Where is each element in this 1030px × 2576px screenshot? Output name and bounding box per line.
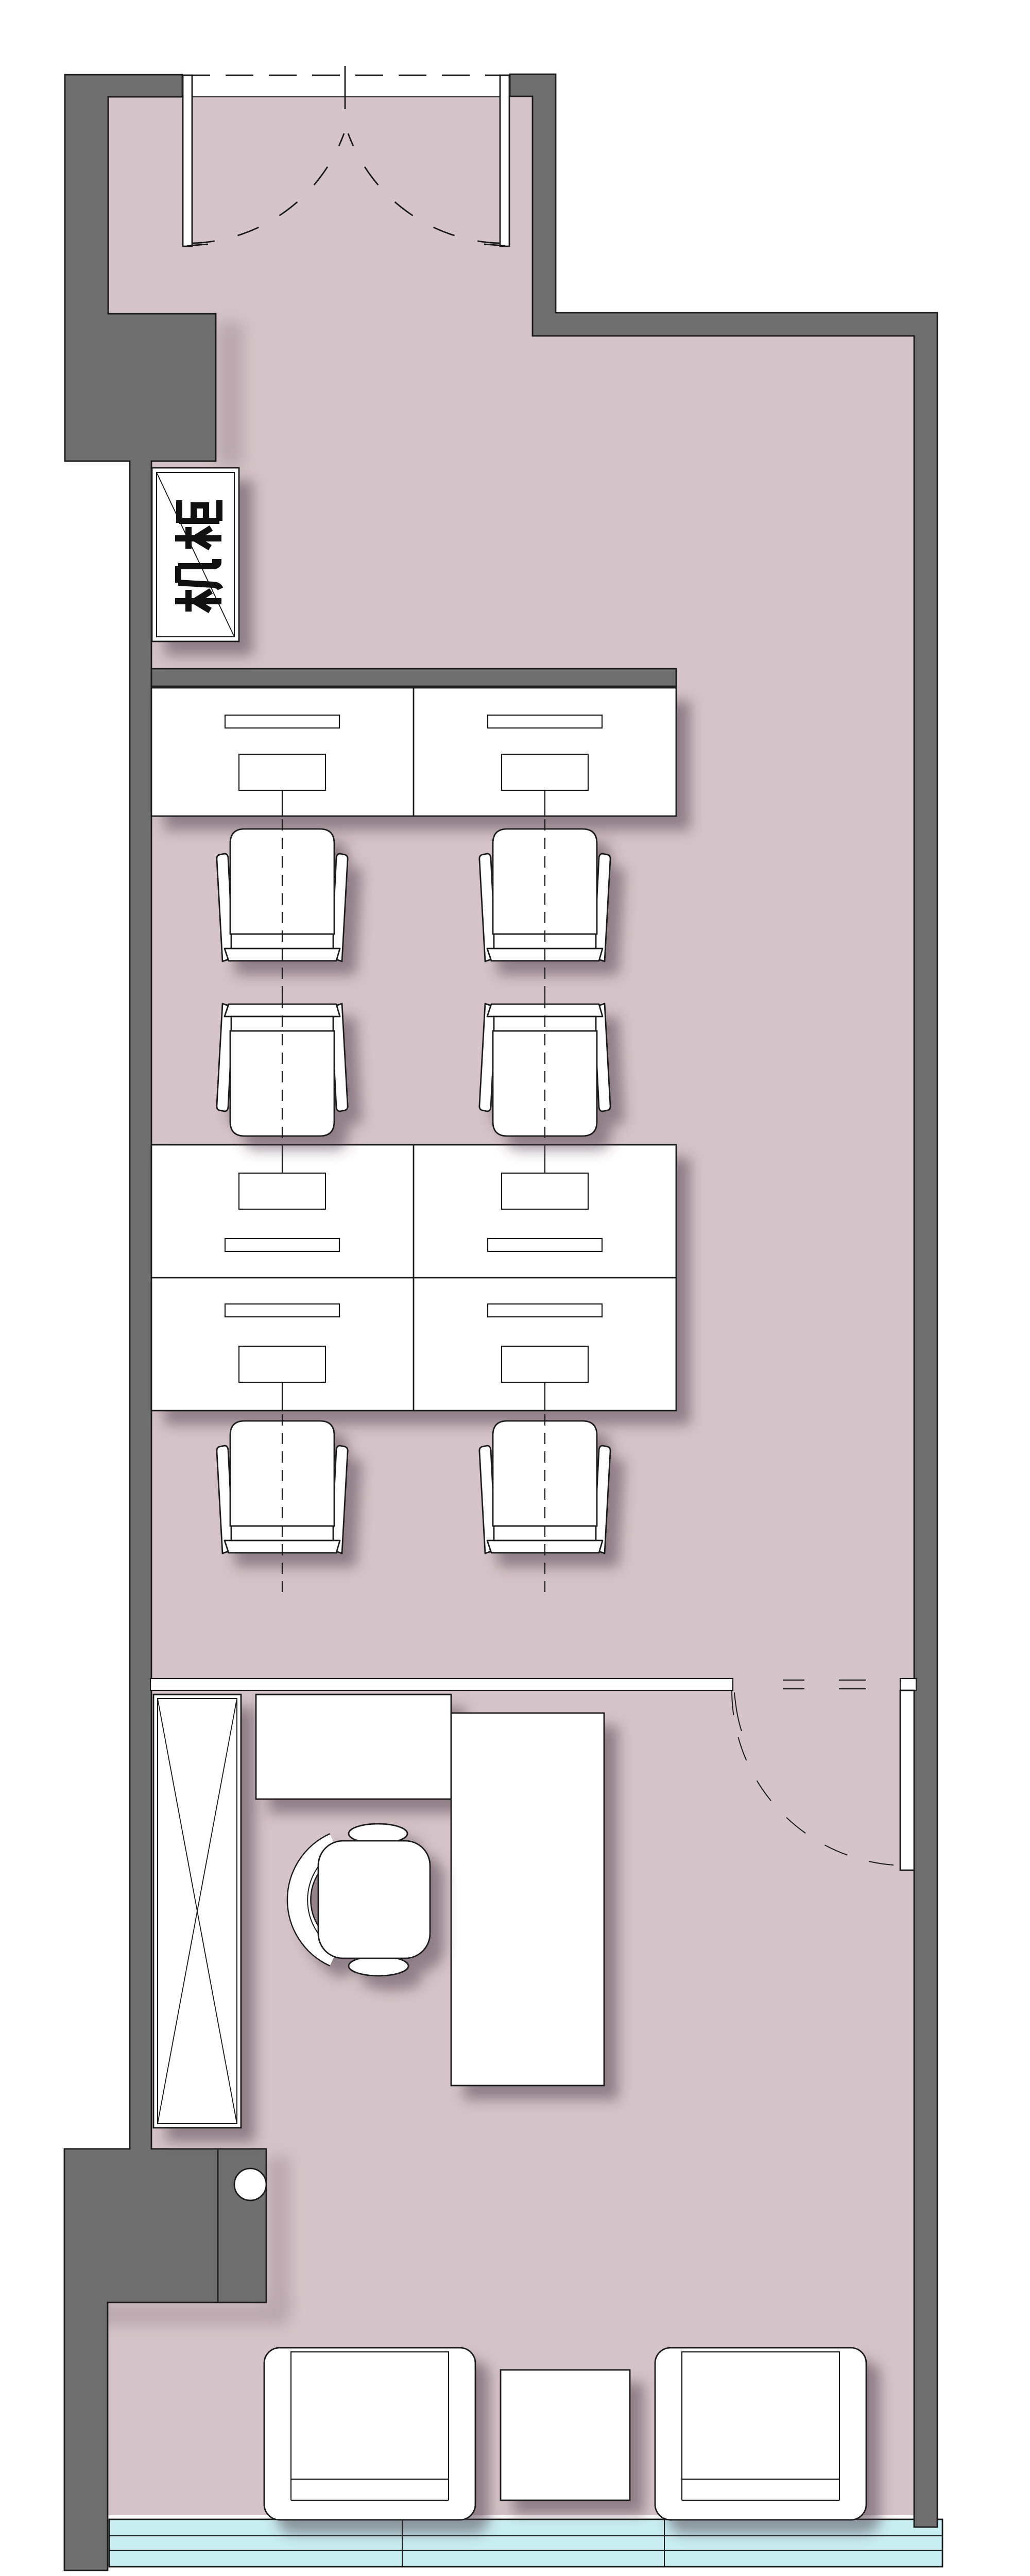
svg-text:8417: 8417 <box>466 2573 630 2576</box>
